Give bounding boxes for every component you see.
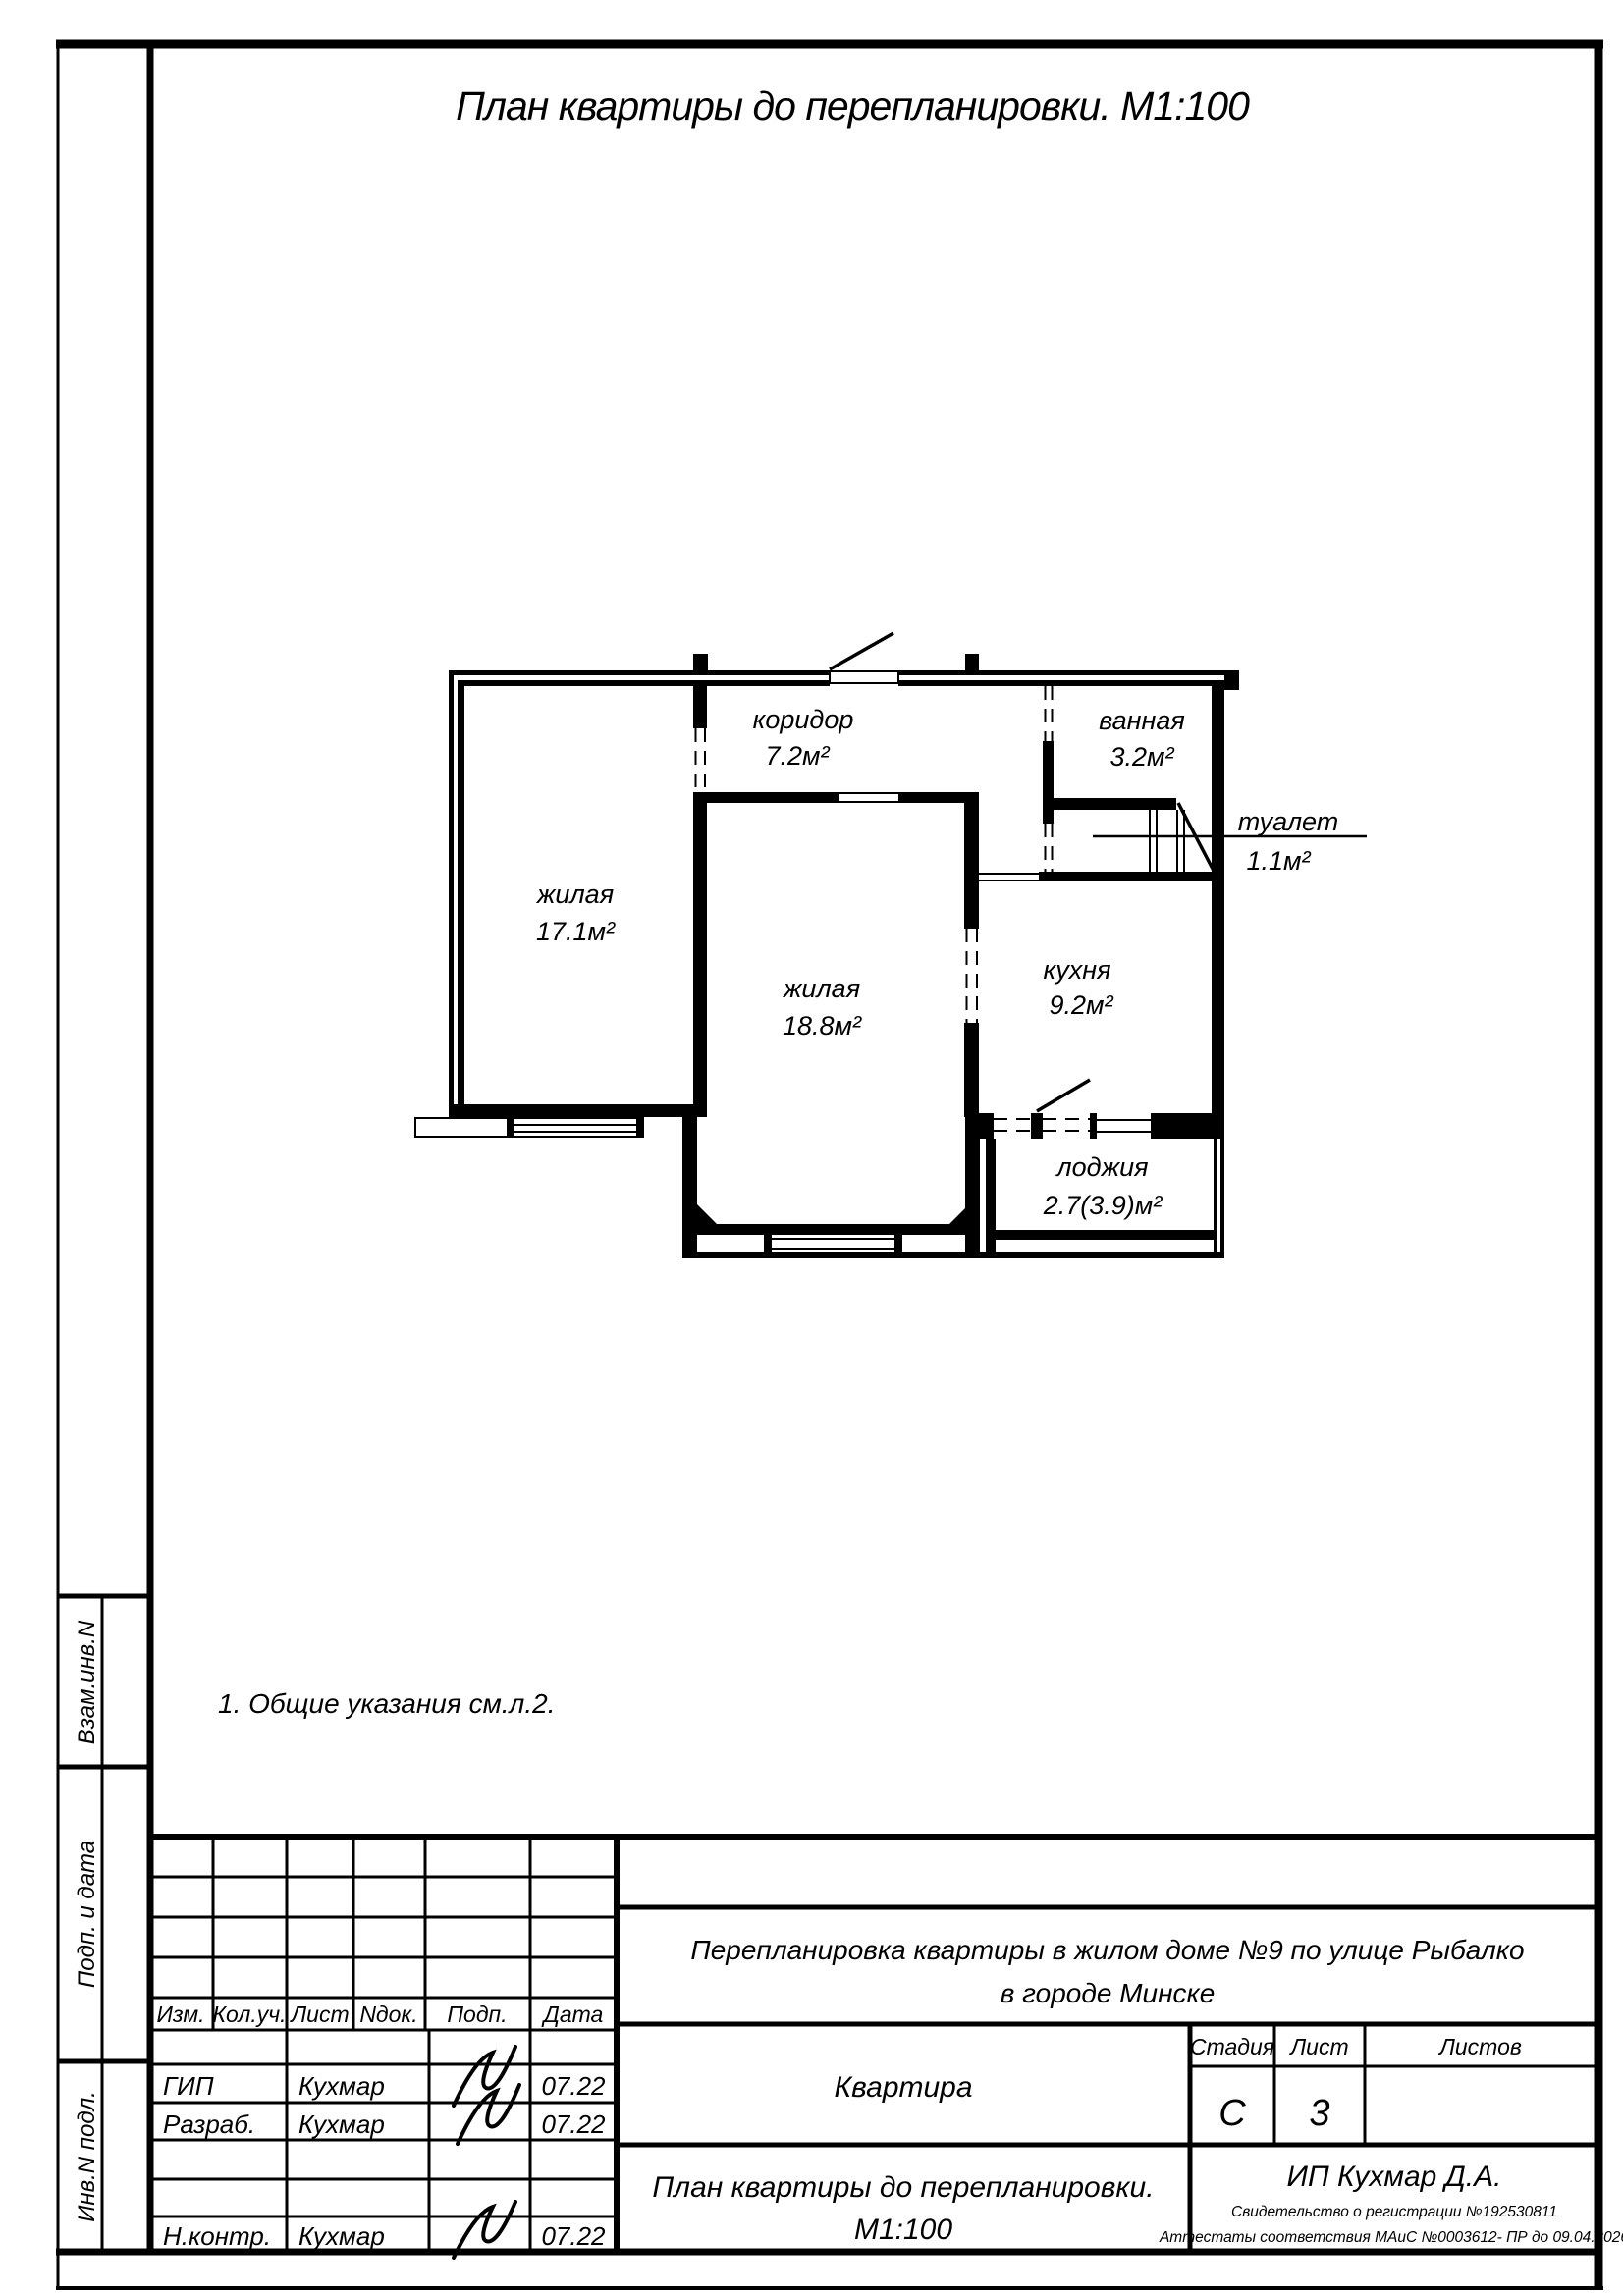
- room-area-vannaya: 3.2м²: [1109, 742, 1174, 772]
- row-razrab-name: Кухмар: [298, 2109, 385, 2139]
- object-name: Квартира: [834, 2071, 972, 2104]
- project-title-line2: в городе Минске: [1001, 1978, 1216, 2008]
- room-area-zhilaya-17: 17.1м²: [536, 917, 616, 946]
- balcony-door-swing: [1037, 1080, 1090, 1111]
- signature-razrab: [458, 2085, 519, 2144]
- room-label-zhilaya-17: жилая: [536, 880, 614, 909]
- general-note: 1. Общие указания см.л.2.: [218, 1688, 555, 1719]
- stage-label: Стадия: [1190, 2034, 1274, 2059]
- row-razrab-role: Разраб.: [163, 2109, 255, 2139]
- room-label-tualet: туалет: [1238, 807, 1339, 836]
- firm-cert2: Аттестаты соответствия МАиС №0003612- ПР…: [1159, 2229, 1623, 2246]
- col-header-izm: Изм.: [156, 2002, 204, 2027]
- room-area-lodzhiya: 2.7(3.9)м²: [1043, 1191, 1163, 1220]
- sheet-title-line2: М1:100: [854, 2214, 952, 2246]
- col-header-list: Лист: [289, 2002, 349, 2027]
- sheets-label: Листов: [1437, 2034, 1522, 2059]
- room-area-zhilaya-18: 18.8м²: [783, 1011, 862, 1041]
- firm-name: ИП Кухмар Д.А.: [1287, 2161, 1502, 2193]
- stage-value: С: [1218, 2093, 1246, 2134]
- project-title-line1: Перепланировка квартиры в жилом доме №9 …: [690, 1935, 1524, 1965]
- left-room-bay: [415, 1118, 643, 1137]
- room-label-zhilaya-18: жилая: [783, 974, 860, 1003]
- margin-label-vzam: Взам.инв.N: [74, 1620, 100, 1744]
- margin-label-podp: Подп. и дата: [74, 1841, 100, 1988]
- entrance-door-swing: [830, 633, 893, 669]
- row-razrab-date: 07.22: [541, 2109, 606, 2139]
- row-nkontr-role: Н.контр.: [163, 2221, 271, 2251]
- col-header-data: Дата: [541, 2002, 604, 2027]
- room-area-kuhnya: 9.2м²: [1049, 990, 1113, 1020]
- margin-label-inv: Инв.N подл.: [74, 2091, 100, 2222]
- room-area-tualet: 1.1м²: [1246, 846, 1311, 876]
- center-room-door-opening: [839, 793, 899, 802]
- room-label-lodzhiya: лоджия: [1055, 1152, 1148, 1182]
- sheet-title-line1: План квартиры до перепланировки.: [652, 2171, 1154, 2204]
- sheet-label: Лист: [1288, 2034, 1348, 2059]
- room-label-koridor: коридор: [753, 705, 854, 734]
- row-gip-name: Кухмар: [298, 2071, 385, 2101]
- col-header-kolich: Кол.уч.: [213, 2002, 287, 2027]
- row-gip-role: ГИП: [163, 2071, 214, 2101]
- page-title: План квартиры до перепланировки. М1:100: [456, 83, 1250, 129]
- row-nkontr-name: Кухмар: [298, 2221, 385, 2251]
- title-block-text: Изм. Кол.уч. Лист Nдок. Подп. Дата ГИП К…: [156, 1935, 1623, 2258]
- drawing-sheet: План квартиры до перепланировки. М1:100: [0, 0, 1623, 2296]
- drawing-canvas: План квартиры до перепланировки. М1:100: [0, 0, 1623, 2296]
- sheet-value: 3: [1309, 2093, 1329, 2134]
- room-area-koridor: 7.2м²: [765, 741, 830, 771]
- room-label-vannaya: ванная: [1099, 706, 1185, 735]
- room-label-kuhnya: кухня: [1043, 955, 1110, 985]
- firm-cert1: Свидетельство о регистрации №192530811: [1231, 2204, 1557, 2220]
- row-gip-date: 07.22: [541, 2071, 606, 2101]
- left-margin-strip: Взам.инв.N Подп. и дата Инв.N подл.: [58, 1596, 150, 2252]
- col-header-ndok: Nдок.: [359, 2002, 417, 2027]
- row-nkontr-date: 07.22: [541, 2221, 606, 2251]
- col-header-podp: Подп.: [447, 2002, 507, 2027]
- entrance-opening: [830, 671, 898, 683]
